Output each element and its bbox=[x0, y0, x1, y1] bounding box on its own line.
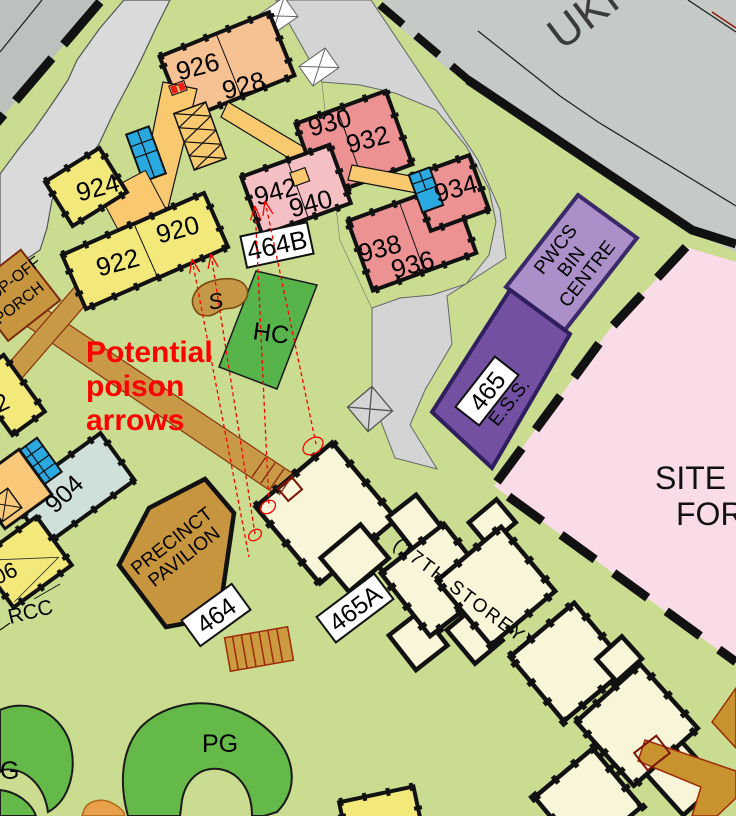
svg-text:G: G bbox=[0, 757, 19, 785]
svg-text:HC: HC bbox=[251, 317, 291, 350]
svg-text:FOR: FOR bbox=[676, 496, 736, 532]
svg-text:PG: PG bbox=[202, 730, 238, 758]
svg-text:poison: poison bbox=[86, 370, 184, 403]
svg-text:arrows: arrows bbox=[86, 404, 184, 437]
svg-text:SITE F: SITE F bbox=[655, 460, 736, 496]
svg-text:Potential: Potential bbox=[86, 336, 213, 369]
